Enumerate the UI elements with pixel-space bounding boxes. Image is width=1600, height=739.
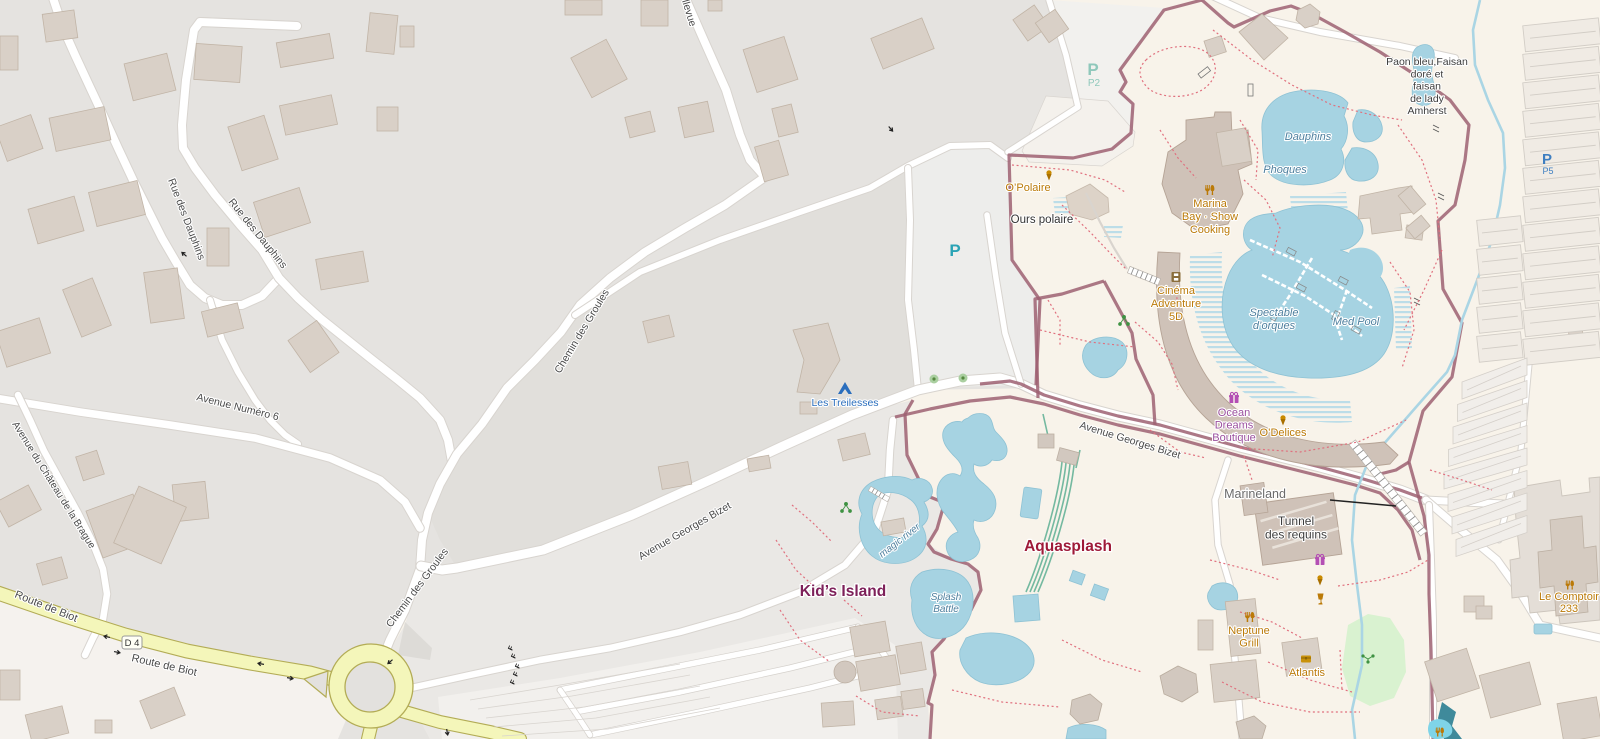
svg-text:OceanDreamsBoutique: OceanDreamsBoutique [1212,407,1255,444]
svg-text:Aquasplash: Aquasplash [1024,538,1112,555]
svg-text:Med Pool: Med Pool [1333,316,1380,328]
svg-text:Spectabled’orques: Spectabled’orques [1250,307,1299,332]
svg-text:P5: P5 [1542,166,1553,176]
svg-text:Ours polaire: Ours polaire [1011,214,1074,226]
svg-text:SplashBattle: SplashBattle [931,592,962,615]
svg-text:Marineland: Marineland [1224,487,1286,501]
svg-text:P: P [949,241,960,260]
svg-text:Phoques: Phoques [1263,164,1307,176]
svg-text:Les Treilesses: Les Treilesses [811,397,878,409]
svg-text:D 4: D 4 [125,638,140,649]
svg-text:Atlantis: Atlantis [1289,667,1326,679]
svg-text:O’Polaire: O’Polaire [1005,182,1050,194]
svg-text:Kid’s Island: Kid’s Island [800,583,886,600]
svg-text:P2: P2 [1088,78,1101,89]
svg-text:P: P [1087,60,1098,79]
svg-text:Dauphins: Dauphins [1285,131,1332,143]
svg-text:O’Delices: O’Delices [1259,427,1307,439]
